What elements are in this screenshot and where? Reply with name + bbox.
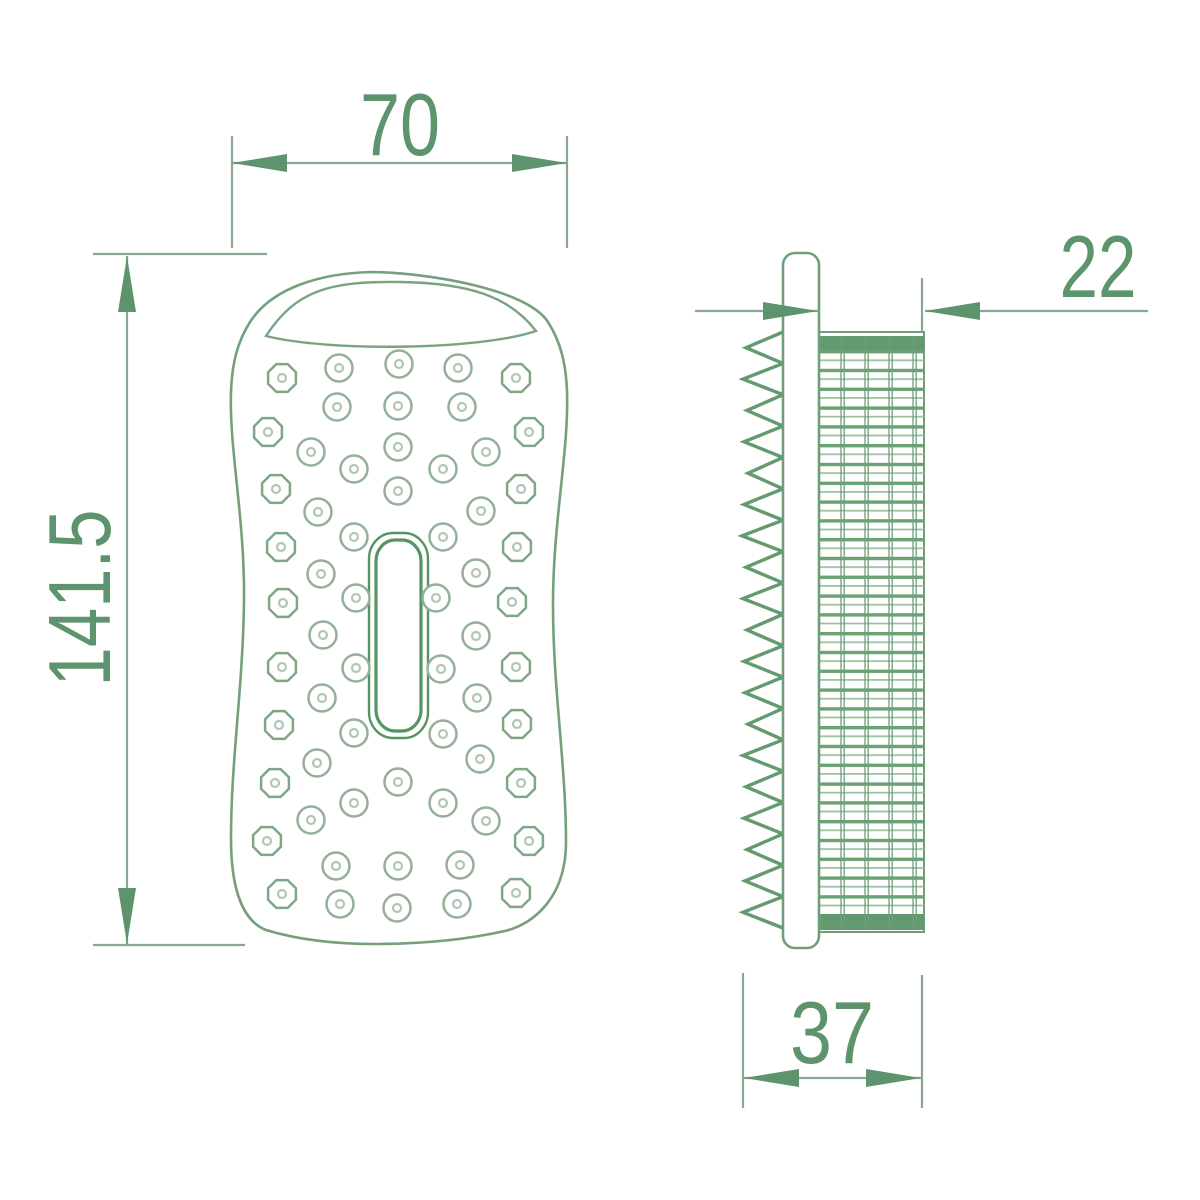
nub-circle: [430, 524, 457, 551]
nub-circle: [449, 394, 476, 421]
nub-octagon: [268, 653, 296, 681]
nub-circle: [384, 895, 411, 922]
dim-label-front-height: 141.5: [30, 510, 129, 687]
nub-circle: [305, 499, 332, 526]
arrowhead-right-icon: [866, 1069, 921, 1087]
nub-circle: [323, 853, 350, 880]
nub-circle: [310, 622, 337, 649]
nub-octagon: [498, 588, 526, 616]
nub-octagon: [254, 418, 282, 446]
nub-circle: [428, 656, 455, 683]
grid-slats: [818, 350, 924, 914]
nub-circle: [341, 790, 368, 817]
nub-circle: [385, 853, 412, 880]
drawing-canvas: 70 141.5 22 37: [0, 0, 1200, 1200]
nub-circle: [447, 852, 474, 879]
nub-circle: [385, 478, 412, 505]
nub-circle: [341, 456, 368, 483]
dim-label-total-depth: 37: [790, 983, 874, 1082]
dim-body-depth: 22: [695, 217, 1148, 332]
nub-octagon: [253, 827, 281, 855]
nub-circle: [423, 585, 450, 612]
nub-circle: [341, 524, 368, 551]
nub-octagon: [268, 880, 296, 908]
nub-circle: [430, 456, 457, 483]
nub-circle: [473, 439, 500, 466]
nub-circle: [468, 498, 495, 525]
nub-octagon: [507, 475, 535, 503]
nub-circle: [326, 355, 353, 382]
nub-octagon: [269, 589, 297, 617]
nub-circle: [463, 560, 490, 587]
nub-circle: [473, 808, 500, 835]
technical-drawing: 70 141.5 22 37: [0, 0, 1200, 1200]
nub-circle: [327, 891, 354, 918]
nub-octagon: [268, 364, 296, 392]
nub-circle: [385, 393, 412, 420]
arrowhead-down-icon: [118, 888, 136, 944]
nub-circle: [343, 655, 370, 682]
nub-circle: [341, 720, 368, 747]
nub-octagon: [502, 879, 530, 907]
bristles: [742, 332, 783, 928]
nub-octagon: [502, 364, 530, 392]
dim-label-front-width: 70: [360, 75, 440, 174]
nub-circle: [324, 394, 351, 421]
nub-octagon: [507, 769, 535, 797]
nub-circle: [464, 685, 491, 712]
arrowhead-left-icon: [232, 154, 287, 172]
nub-circle: [308, 561, 335, 588]
nub-circle: [298, 439, 325, 466]
grid-bottom-band: [818, 914, 924, 930]
dim-label-body-depth: 22: [1060, 217, 1137, 316]
nub-octagon: [515, 418, 543, 446]
side-view: [742, 253, 924, 948]
nub-circle: [444, 891, 471, 918]
nub-circle: [463, 623, 490, 650]
nub-octagon: [503, 710, 531, 738]
nub-octagon: [265, 711, 293, 739]
nub-octagon: [262, 475, 290, 503]
dim-total-depth: 37: [743, 973, 922, 1108]
nub-octagon: [515, 827, 543, 855]
back-plate: [783, 253, 819, 948]
nub-circle: [385, 434, 412, 461]
nub-circle: [309, 685, 336, 712]
nub-octagon: [261, 769, 289, 797]
front-view: [231, 272, 567, 944]
grid-body: [818, 332, 924, 932]
nub-octagon: [503, 533, 531, 561]
nub-circle: [304, 750, 331, 777]
arrowhead-left-icon: [925, 302, 980, 320]
nub-circle: [467, 746, 494, 773]
nub-circle: [343, 585, 370, 612]
nub-circle: [386, 351, 413, 378]
center-slot-outer: [369, 533, 428, 738]
nub-circle: [445, 355, 472, 382]
nub-circle: [430, 721, 457, 748]
nub-circle: [385, 769, 412, 796]
nub-circle: [430, 790, 457, 817]
nub-circle: [298, 807, 325, 834]
arrowhead-right-icon: [512, 154, 567, 172]
grid-top-band: [818, 336, 924, 350]
arrowhead-up-icon: [118, 256, 136, 312]
dim-front-width: 70: [232, 75, 567, 248]
nub-octagon: [267, 533, 295, 561]
nub-octagon: [502, 653, 530, 681]
